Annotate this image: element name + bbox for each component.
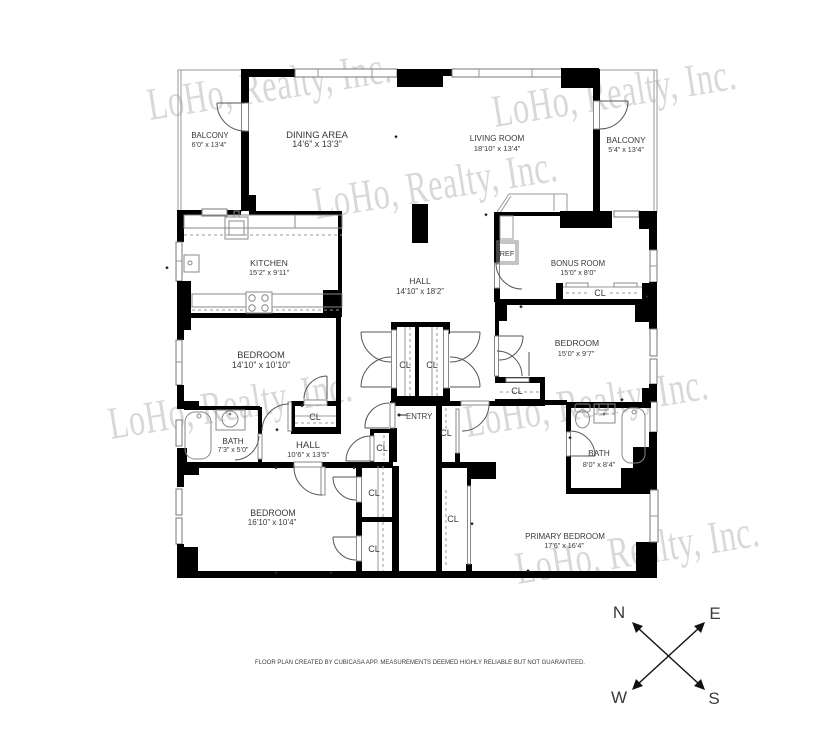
svg-text:S: S	[708, 689, 719, 708]
svg-text:E: E	[709, 604, 720, 623]
svg-text:CL: CL	[376, 443, 388, 453]
svg-text:CL: CL	[511, 386, 523, 396]
svg-text:BATH: BATH	[222, 437, 243, 446]
svg-text:BATH: BATH	[588, 448, 610, 458]
svg-text:8’0” x 8’4”: 8’0” x 8’4”	[583, 460, 616, 469]
svg-text:PRIMARY BEDROOM: PRIMARY BEDROOM	[525, 532, 605, 541]
svg-text:W: W	[611, 688, 627, 707]
svg-text:BEDROOM: BEDROOM	[237, 350, 284, 360]
svg-text:14’10” x 18’2”: 14’10” x 18’2”	[396, 287, 444, 296]
svg-text:CL: CL	[440, 428, 452, 438]
svg-text:CL: CL	[594, 288, 606, 298]
svg-text:N: N	[613, 603, 625, 622]
svg-text:14’6” x 13’3”: 14’6” x 13’3”	[292, 139, 342, 149]
svg-text:CL: CL	[426, 360, 438, 370]
svg-text:ENTRY: ENTRY	[406, 412, 433, 421]
svg-text:14’10” x 10’10”: 14’10” x 10’10”	[232, 360, 290, 370]
svg-text:KITCHEN: KITCHEN	[250, 258, 288, 268]
svg-text:BEDROOM: BEDROOM	[555, 338, 599, 348]
svg-text:15’2” x 9’11”: 15’2” x 9’11”	[249, 268, 290, 277]
svg-text:LIVING ROOM: LIVING ROOM	[470, 134, 525, 143]
svg-text:CL: CL	[309, 412, 321, 422]
svg-text:BALCONY: BALCONY	[606, 136, 646, 145]
svg-text:6’0” x 13’4”: 6’0” x 13’4”	[192, 142, 227, 149]
svg-text:10’6” x 13’5”: 10’6” x 13’5”	[287, 450, 329, 459]
svg-text:FLOOR PLAN CREATED BY CUBICASA: FLOOR PLAN CREATED BY CUBICASA APP. MEAS…	[255, 660, 585, 666]
svg-text:CL: CL	[447, 514, 459, 524]
svg-text:BEDROOM: BEDROOM	[250, 508, 295, 518]
svg-text:HALL: HALL	[409, 276, 431, 286]
svg-text:15’0” x 8’0”: 15’0” x 8’0”	[560, 268, 596, 277]
svg-text:CL: CL	[368, 544, 380, 554]
svg-text:7’3” x 5’0”: 7’3” x 5’0”	[218, 447, 249, 454]
svg-text:5’4” x 13’4”: 5’4” x 13’4”	[608, 145, 644, 154]
svg-text:BONUS ROOM: BONUS ROOM	[551, 259, 605, 268]
svg-text:15’0” x 9’7”: 15’0” x 9’7”	[558, 349, 595, 358]
svg-text:16’10” x 10’4”: 16’10” x 10’4”	[248, 518, 297, 527]
svg-text:18’10” x 13’4”: 18’10” x 13’4”	[474, 144, 521, 153]
svg-text:REF: REF	[500, 249, 515, 258]
svg-text:CL: CL	[368, 488, 380, 498]
svg-text:BALCONY: BALCONY	[191, 131, 229, 140]
svg-text:CL: CL	[399, 360, 411, 370]
svg-text:17’6” x 16’4”: 17’6” x 16’4”	[544, 541, 584, 550]
